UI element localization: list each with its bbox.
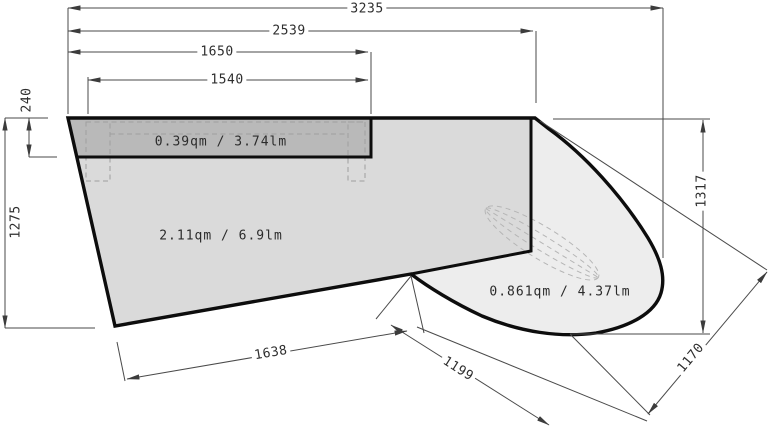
dim-label-1317: 1317 <box>696 171 709 210</box>
dim-label-1275: 1275 <box>10 205 23 238</box>
drawing-geometry <box>0 0 768 432</box>
dim-1170-line <box>648 272 767 414</box>
dim-label-1650: 1650 <box>197 46 236 59</box>
cad-drawing-canvas: 3235 2539 1650 1540 240 1275 1638 1199 1… <box>0 0 768 432</box>
dim-label-240: 240 <box>21 88 34 113</box>
dim-label-2539: 2539 <box>269 25 308 38</box>
dim-label-3235: 3235 <box>347 3 386 16</box>
area-label-main: 2.11qm / 6.9lm <box>159 230 283 243</box>
area-label-band: 0.39qm / 3.74lm <box>155 136 287 149</box>
area-label-island: 0.861qm / 4.37lm <box>489 286 630 299</box>
dim-label-1540: 1540 <box>207 74 246 87</box>
